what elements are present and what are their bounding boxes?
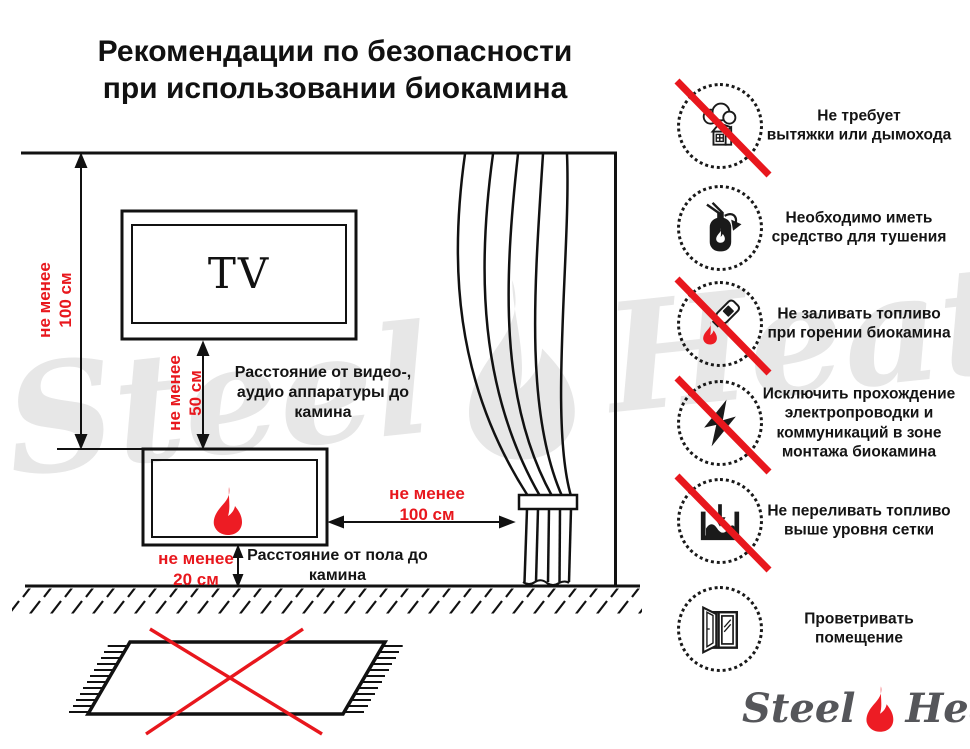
tv-label: TV bbox=[122, 211, 356, 335]
floor-hatching bbox=[12, 589, 642, 614]
steelheat-logo: Steel Heat bbox=[742, 684, 970, 734]
rule-text-no-refuel: Не заливать топливо при горении биокамин… bbox=[750, 305, 968, 344]
dimension-tv-50cm: не менее 50 см bbox=[164, 341, 204, 445]
no-chimney-icon bbox=[692, 98, 748, 154]
infographic-biofireplace-safety: Steel Heat Рекомендации по безопасности … bbox=[0, 0, 970, 749]
rule-text-extinguisher: Необходимо иметь средство для тушения bbox=[750, 209, 968, 248]
rule-text-no-wiring: Исключить прохождение электропроводки и … bbox=[750, 384, 968, 462]
rule-text-no-overfill: Не переливать топливо выше уровня сетки bbox=[750, 502, 968, 541]
no-electrical-wiring-icon bbox=[692, 395, 748, 451]
note-av-distance: Расстояние от видео-, аудио аппаратуры д… bbox=[212, 363, 434, 423]
no-refuel-while-burning-icon bbox=[692, 296, 748, 352]
logo-heat-text: Heat bbox=[905, 689, 970, 729]
rule-text-ventilate: Проветривать помещение bbox=[750, 610, 968, 649]
dimension-wall-100cm: не менее 100 см bbox=[34, 238, 78, 362]
dimension-curtain-100cm: не менее 100 см bbox=[356, 483, 498, 526]
rule-text-no-chimney: Не требует вытяжки или дымохода bbox=[750, 107, 968, 146]
extinguisher-icon bbox=[692, 200, 748, 256]
fireplace-outline bbox=[57, 449, 327, 545]
dimension-floor-20cm: не менее 20 см bbox=[156, 548, 236, 591]
rug-crossed-out bbox=[69, 629, 403, 734]
ventilate-room-icon bbox=[692, 601, 748, 657]
no-overfill-icon bbox=[692, 493, 748, 549]
logo-steel-text: Steel bbox=[742, 689, 855, 729]
logo-flame-icon bbox=[861, 684, 899, 734]
page-title: Рекомендации по безопасности при использ… bbox=[30, 34, 640, 108]
curtain-tie bbox=[519, 495, 577, 509]
fireplace-flame-icon bbox=[214, 487, 242, 535]
note-floor-distance: Расстояние от пола до камина bbox=[245, 546, 430, 586]
